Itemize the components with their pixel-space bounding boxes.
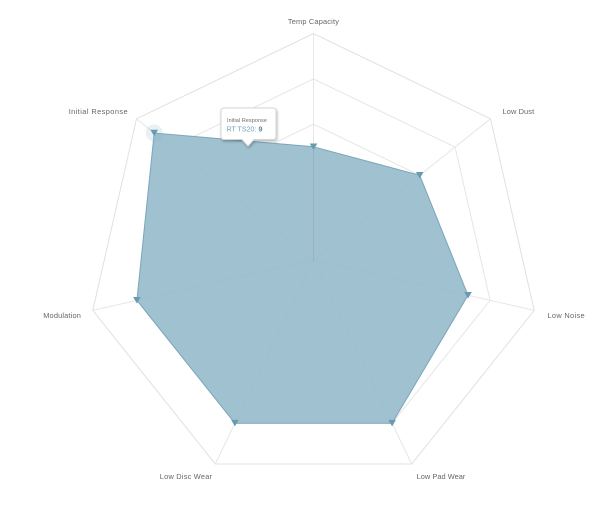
svg-text:Low Disc Wear: Low Disc Wear [160,472,213,481]
svg-text:Initial Response: Initial Response [69,107,128,116]
svg-text:Initial Response: Initial Response [227,118,267,124]
svg-text:Low Dust: Low Dust [503,107,535,116]
svg-text:RT TS20: 9: RT TS20: 9 [227,125,263,133]
svg-text:Low Noise: Low Noise [548,311,585,320]
svg-text:Temp Capacity: Temp Capacity [288,17,339,26]
svg-text:Modulation: Modulation [43,311,81,320]
svg-text:Low Pad Wear: Low Pad Wear [417,472,466,481]
